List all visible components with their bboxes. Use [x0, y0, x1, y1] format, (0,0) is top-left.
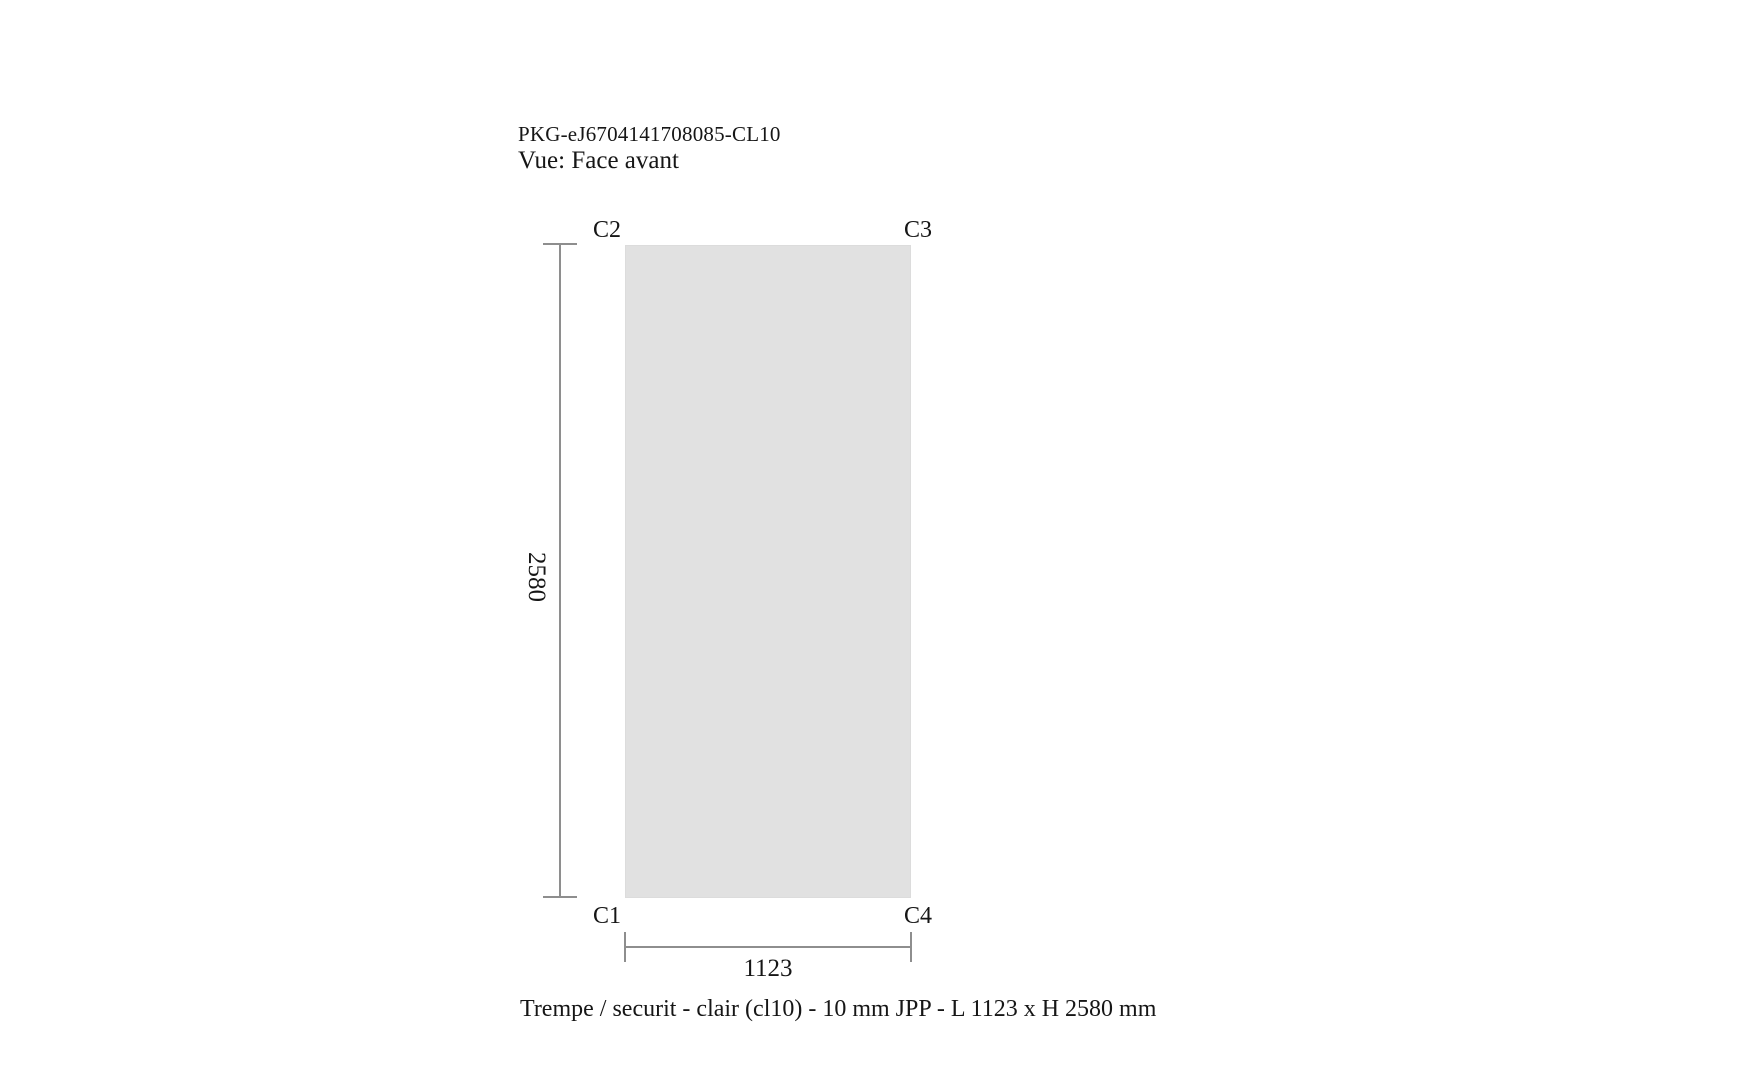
corner-label-c1: C1	[593, 903, 621, 930]
package-reference: PKG-eJ6704141708085-CL10	[518, 122, 781, 147]
glass-description: Trempe / securit - clair (cl10) - 10 mm …	[520, 996, 1156, 1023]
corner-label-c4: C4	[904, 903, 932, 930]
width-dimension-value: 1123	[743, 955, 792, 983]
height-dimension-value: 2580	[522, 552, 550, 602]
view-label: Vue: Face avant	[518, 147, 679, 175]
width-dimension-tick-right	[910, 932, 912, 962]
corner-label-c3: C3	[904, 217, 932, 244]
height-dimension-cap-bottom	[543, 896, 577, 898]
height-dimension-cap-top	[543, 243, 577, 245]
corner-label-c2: C2	[593, 217, 621, 244]
height-dimension-line	[559, 244, 561, 898]
width-dimension-tick-left	[624, 932, 626, 962]
width-dimension-line	[625, 946, 911, 948]
drawing-canvas: PKG-eJ6704141708085-CL10 Vue: Face avant…	[0, 0, 1739, 1080]
glass-panel	[625, 245, 911, 898]
